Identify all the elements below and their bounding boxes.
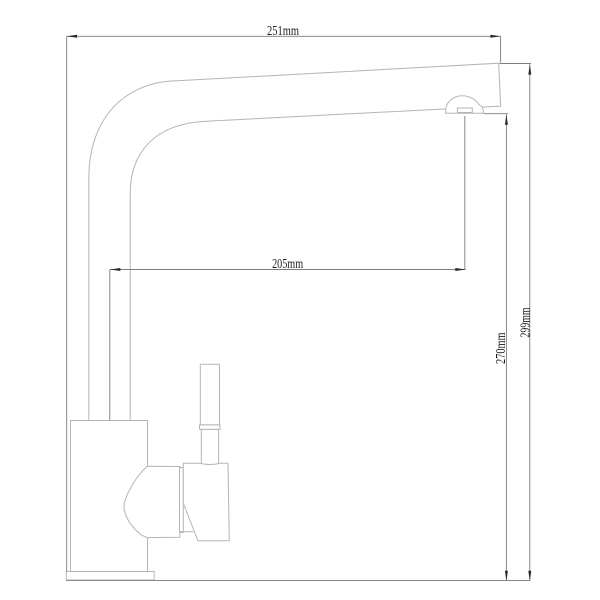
- svg-text:299mm: 299mm: [517, 307, 532, 337]
- svg-text:205mm: 205mm: [272, 256, 303, 271]
- svg-text:251mm: 251mm: [267, 23, 299, 38]
- svg-text:270mm: 270mm: [493, 332, 508, 364]
